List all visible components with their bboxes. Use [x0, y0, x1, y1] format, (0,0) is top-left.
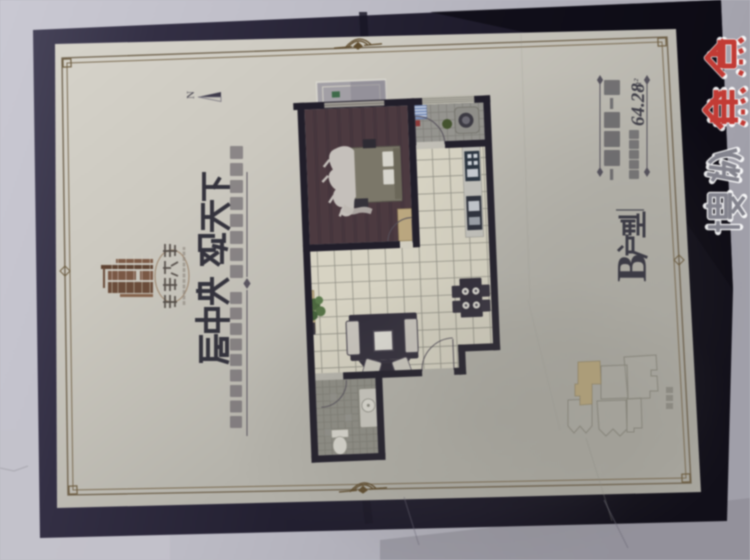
svg-text:N: N: [185, 91, 197, 99]
svg-text:B: B: [610, 254, 656, 282]
svg-text:m²: m²: [632, 78, 644, 90]
